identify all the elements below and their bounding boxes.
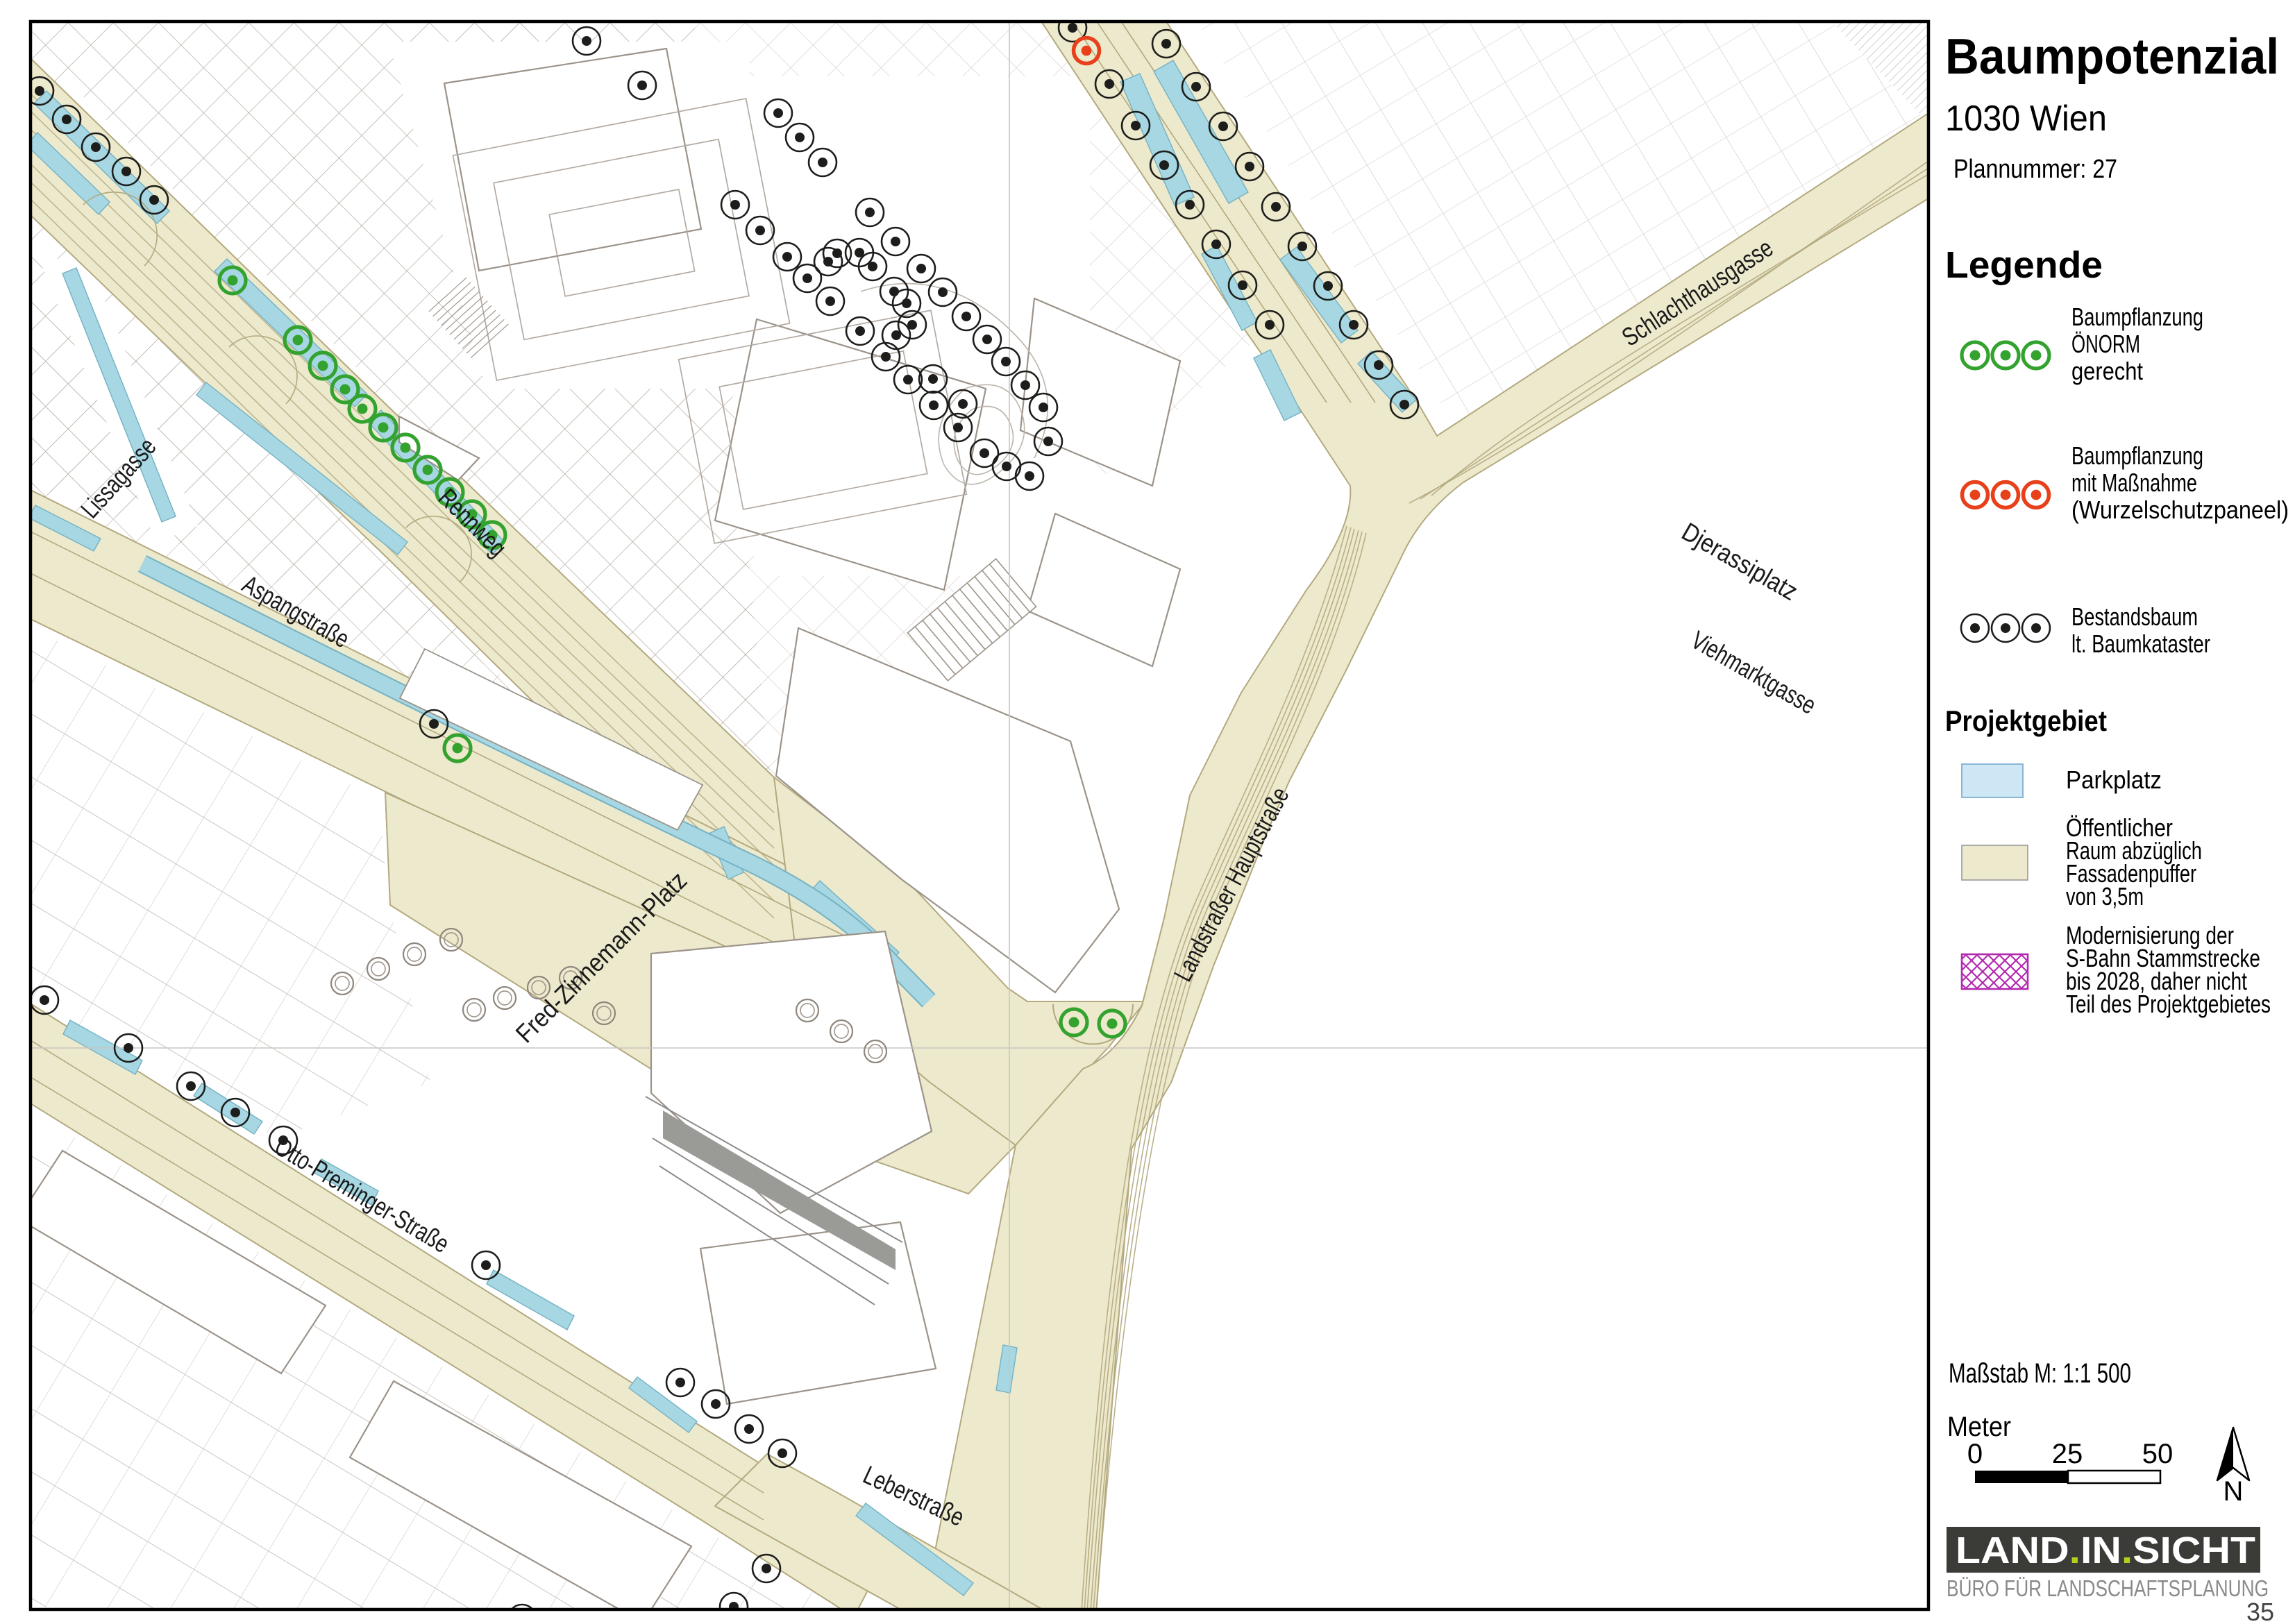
svg-text:1030 Wien: 1030 Wien: [1945, 99, 2107, 139]
svg-text:0: 0: [1967, 1439, 1983, 1469]
svg-text:Maßstab M: 1:1 500: Maßstab M: 1:1 500: [1949, 1358, 2131, 1389]
svg-text:gerecht: gerecht: [2071, 357, 2143, 385]
svg-text:Baumpflanzung: Baumpflanzung: [2071, 303, 2203, 331]
svg-text:50: 50: [2142, 1439, 2174, 1469]
svg-text:25: 25: [2052, 1439, 2083, 1469]
svg-text:Parkplatz: Parkplatz: [2066, 766, 2162, 794]
svg-text:ÖNORM: ÖNORM: [2071, 330, 2140, 358]
svg-text:N: N: [2223, 1476, 2244, 1507]
svg-text:BÜRO FÜR LANDSCHAFTSPLANUNG: BÜRO FÜR LANDSCHAFTSPLANUNG: [1947, 1575, 2269, 1601]
svg-text:Projektgebiet: Projektgebiet: [1945, 704, 2107, 737]
svg-text:Bestandsbaum: Bestandsbaum: [2071, 602, 2198, 631]
svg-text:(Wurzelschutzpaneel): (Wurzelschutzpaneel): [2071, 496, 2289, 524]
svg-text:Baumpflanzung: Baumpflanzung: [2071, 441, 2203, 470]
svg-text:Meter: Meter: [1947, 1412, 2011, 1442]
svg-text:Baumpotenzial: Baumpotenzial: [1945, 29, 2279, 85]
svg-text:von 3,5m: von 3,5m: [2066, 882, 2144, 911]
svg-text:mit Maßnahme: mit Maßnahme: [2071, 468, 2197, 497]
svg-text:Legende: Legende: [1945, 244, 2103, 286]
svg-text:LAND.IN.SICHT: LAND.IN.SICHT: [1956, 1530, 2255, 1571]
svg-text:35: 35: [2246, 1598, 2274, 1624]
svg-text:lt. Baumkataster: lt. Baumkataster: [2071, 629, 2210, 658]
svg-text:Plannummer: 27: Plannummer: 27: [1953, 155, 2117, 184]
svg-text:Teil des Projektgebietes: Teil des Projektgebietes: [2066, 990, 2271, 1018]
